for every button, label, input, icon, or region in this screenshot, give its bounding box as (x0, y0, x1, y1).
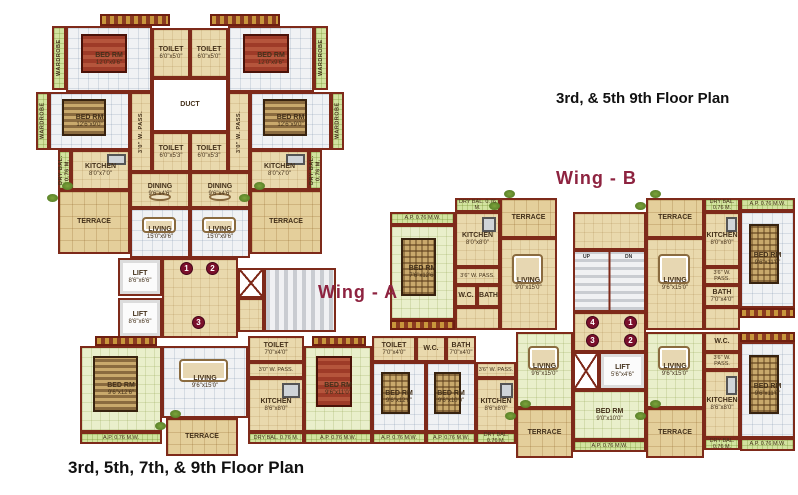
wbbr-drybal-strip: DRY BAL. 0.76 M. (704, 438, 740, 450)
wbtl-terrace: TERRACE (500, 198, 557, 238)
wbc-lift-shaft (573, 352, 599, 390)
toilet-top-1-label: TOILET6'0"x5'0" (154, 30, 188, 76)
dining-left: DINING9'6"x4'6" (130, 172, 190, 208)
passage-left-label: 3'0" W. PASS. (132, 94, 150, 170)
wbtr-bath: BATH7'0"x4'0" (704, 285, 740, 307)
wa-passage-label: 3'0" W. PASS. (250, 364, 302, 376)
wbtl-bath: BATH (477, 285, 500, 307)
wbbr-kitchen: KITCHEN8'6"x8'0" (704, 370, 740, 438)
sofa-icon (528, 346, 560, 370)
passage-right-label: 3'0" W. PASS. (230, 94, 248, 170)
sofa-icon (179, 359, 228, 382)
wbbl-drybal-strip-label: DRY BAL. 0.76 M. (478, 434, 514, 442)
wa-bedroom-2: BED RM9'6"x11'0" (304, 346, 372, 432)
bed-red-icon (316, 356, 352, 407)
wa-ap-strip-2: A.P. 0.76 M.W. (304, 432, 372, 444)
wbtr-ap-strip: A.P. 0.76 M.W. (740, 198, 795, 211)
kitchen-left: KITCHEN8'0"x7'0" (71, 150, 130, 190)
wbbl-ap-strip-1: A.P. 0.76 M.W. (372, 432, 426, 444)
shaft-landing-a (238, 298, 264, 332)
name-board-3 (95, 336, 157, 346)
wing-b-label: Wing - B (556, 168, 637, 189)
duct: DUCT (152, 78, 228, 132)
passage-left: 3'0" W. PASS. (130, 92, 152, 172)
wbbr-terrace-label: TERRACE (648, 410, 702, 456)
wbbl-wc-label: W.C. (418, 338, 444, 360)
wbc-lift-label: LIFT5'6"x4'6" (601, 354, 644, 388)
plan-title-top: 3rd, & 5th 9th Floor Plan (556, 90, 729, 107)
wbbl-ap-strip-1-label: A.P. 0.76 M.W. (374, 434, 424, 442)
wbc-ap-strip-label: A.P. 0.76 M.W. (575, 442, 644, 450)
dining-left-label: DINING9'6"x4'6" (132, 174, 188, 206)
bedroom-top-left: BED RM12'0"x9'6" (66, 26, 152, 92)
name-board-5 (390, 320, 455, 330)
wa-toilet: TOILET7'0"x4'0" (248, 336, 304, 362)
name-board-4 (312, 336, 366, 346)
bed-red-icon (243, 34, 289, 72)
wbbl-bedroom-1: BED RM9'6"x12'6" (372, 362, 426, 432)
wardrobe-strip-1-label: WARDROBE (54, 28, 64, 88)
wa-ap-strip-1: A.P. 0.76 M.W. (80, 432, 162, 444)
sofa-icon (512, 254, 544, 284)
stairs-up-label: UP (583, 254, 590, 260)
wbc-landing (573, 212, 646, 250)
toilet-mid-1: TOILET6'0"x5'3" (152, 132, 190, 172)
toilet-top-2: TOILET6'0"x5'0" (190, 28, 228, 78)
plan-title-bottom: 3rd, 5th, 7th, & 9th Floor Plan (68, 458, 304, 478)
sofa-icon (658, 346, 690, 370)
wardrobe-strip-3-label: WARDROBE (38, 94, 47, 148)
flat-marker-3: 3 (192, 316, 205, 329)
kitchen-icon (107, 154, 126, 165)
wa-living: LIVING9'6"x15'0" (162, 346, 248, 418)
lift-2: LIFT8'6"x6'6" (118, 298, 162, 338)
bed-plaid-icon (749, 355, 779, 414)
sofa-icon (142, 217, 176, 233)
wbtr-terrace-label: TERRACE (648, 200, 702, 236)
wbbr-drybal-strip-label: DRY BAL. 0.76 M. (706, 440, 738, 448)
terrace-right-label: TERRACE (252, 192, 320, 252)
wardrobe-strip-2-label: WARDROBE (316, 28, 326, 88)
wbbr-ap-strip-label: A.P. 0.76 M.W. (742, 440, 793, 449)
bedroom-top-right: BED RM12'0"x9'6" (228, 26, 314, 92)
toilet-mid-2-label: TOILET6'0"x5'3" (192, 134, 226, 170)
flat-marker-1: 1 (624, 316, 637, 329)
kitchen-icon (482, 217, 496, 232)
dining-right: DINING9'6"x4'6" (190, 172, 250, 208)
wbbr-passage: 3'6" W. PASS. (704, 352, 740, 370)
wbbl-bedroom-2: BED RM9'6"x10'0" (426, 362, 476, 432)
toilet-mid-2: TOILET6'0"x5'3" (190, 132, 228, 172)
terrace-left-label: TERRACE (60, 192, 128, 252)
lift-1-label: LIFT8'6"x6'6" (120, 260, 160, 294)
wa-passage: 3'0" W. PASS. (248, 362, 304, 378)
bedroom-mid-left: BED RM12'6"x9'0" (49, 92, 130, 150)
wbbl-terrace-label: TERRACE (518, 410, 571, 456)
wbtr-passage-label: 3'6" W. PASS. (706, 269, 738, 283)
wbtl-bedroom: BED RM7'6"x12'6" (390, 225, 455, 320)
wbtl-wc: W.C. (455, 285, 477, 307)
wbtl-terrace-label: TERRACE (502, 200, 555, 236)
flat-marker-1: 1 (180, 262, 193, 275)
flat-marker-3: 3 (586, 334, 599, 347)
wbtl-ap-strip-label: A.P. 0.76 M.W. (392, 214, 453, 223)
wbtl-passage: 3'6" W. PASS. (455, 267, 500, 285)
bedroom-mid-right: BED RM12'6"x9'0" (250, 92, 331, 150)
wbbl-passage: 3'6" W. PASS. (476, 362, 516, 378)
wardrobe-strip-4-label: WARDROBE (333, 94, 342, 148)
wbbl-bath-label: BATH7'0"x4'0" (448, 338, 474, 360)
wbtl-living: LIVING9'0"x15'0" (500, 238, 557, 330)
wbbr-living: LIVING9'6"x15'0" (646, 332, 704, 408)
wbtl-bath-label: BATH (479, 287, 498, 305)
floor-plan-canvas: 3rd, & 5th 9th Floor Plan Wing - A Wing … (0, 0, 798, 495)
bed-plaid-icon (434, 372, 461, 414)
wbbr-terrace: TERRACE (646, 408, 704, 458)
wbbr-ap-strip: A.P. 0.76 M.W. (740, 438, 795, 451)
drybal-strip-2-label: DRY BAL. 0.76 M. (311, 152, 320, 188)
wbtr-bedroom: BED RM9'6"x11'0" (740, 211, 795, 308)
wbtr-hall (704, 307, 740, 330)
wbtr-terrace: TERRACE (646, 198, 704, 238)
wardrobe-strip-2: WARDROBE (314, 26, 328, 90)
wbbl-toilet-label: TOILET7'0"x4'0" (374, 338, 414, 360)
dining-right-label: DINING9'6"x4'6" (192, 174, 248, 206)
lift-2-label: LIFT8'6"x6'6" (120, 300, 160, 336)
bed-striped-icon (93, 356, 138, 412)
wing-a-label: Wing - A (318, 282, 398, 303)
sofa-icon (658, 254, 690, 284)
flat-marker-4: 4 (586, 316, 599, 329)
wardrobe-strip-3: WARDROBE (36, 92, 49, 150)
passage-right: 3'0" W. PASS. (228, 92, 250, 172)
wa-drybal-strip-label: DRY BAL. 0.76 M. (250, 434, 302, 442)
table-icon (149, 193, 171, 201)
wbtr-kitchen: KITCHEN8'0"x8'0" (704, 212, 740, 267)
wbbl-living: LIVING9'6"x15'0" (516, 332, 573, 408)
wbtr-passage: 3'6" W. PASS. (704, 267, 740, 285)
kitchen-icon (286, 154, 305, 165)
wbc-ap-strip: A.P. 0.76 M.W. (573, 440, 646, 452)
wbbl-living-label: LIVING9'6"x15'0" (518, 334, 571, 406)
bed-plaid-icon (381, 372, 410, 414)
wbtl-wc-label: W.C. (457, 287, 475, 305)
wbtl-kitchen: KITCHEN8'0"x8'0" (455, 212, 500, 267)
wbtr-ap-strip-label: A.P. 0.76 M.W. (742, 200, 793, 209)
wbbr-wc-label: W.C. (706, 334, 738, 350)
wbtl-ap-strip: A.P. 0.76 M.W. (390, 212, 455, 225)
wbtr-living: LIVING9'6"x15'0" (646, 238, 704, 330)
name-board-7 (740, 332, 795, 342)
wa-drybal-strip: DRY BAL. 0.76 M. (248, 432, 304, 444)
stairs-dn-label: DN (625, 254, 632, 260)
terrace-left: TERRACE (58, 190, 130, 254)
wbbr-passage-label: 3'6" W. PASS. (706, 354, 738, 368)
drybal-strip-2: DRY BAL. 0.76 M. (309, 150, 322, 190)
wbc-lift: LIFT5'6"x4'6" (599, 352, 646, 390)
kitchen-icon (500, 383, 512, 398)
lift-1: LIFT8'6"x6'6" (118, 258, 162, 296)
toilet-mid-1-label: TOILET6'0"x5'3" (154, 134, 188, 170)
wbbl-terrace: TERRACE (516, 408, 573, 458)
lift-shaft-a (238, 268, 264, 298)
name-board-1 (100, 14, 170, 26)
toilet-top-2-label: TOILET6'0"x5'0" (192, 30, 226, 76)
wa-terrace-label: TERRACE (168, 420, 236, 454)
wbtr-drybal-strip: DRY BAL. 0.76 M. (704, 198, 740, 212)
table-icon (209, 193, 231, 201)
flat-marker-2: 2 (624, 334, 637, 347)
flat-marker-2: 2 (206, 262, 219, 275)
wbbl-bath: BATH7'0"x4'0" (446, 336, 476, 362)
wa-terrace: TERRACE (166, 418, 238, 456)
kitchen-icon (726, 376, 737, 395)
name-board-6 (740, 308, 795, 318)
wbbr-living-label: LIVING9'6"x15'0" (648, 334, 702, 406)
bed-red-icon (81, 34, 127, 72)
wa-bedroom-1: BED RM9'6"x12'6" (80, 346, 162, 432)
bed-plaid-icon (749, 224, 779, 284)
wbbl-kitchen: KITCHEN8'6"x8'0" (476, 378, 516, 432)
wbtr-bath-label: BATH7'0"x4'0" (706, 287, 738, 305)
toilet-top-1: TOILET6'0"x5'0" (152, 28, 190, 78)
kitchen-icon (282, 383, 300, 398)
wbtr-drybal-strip-label: DRY BAL. 0.76 M. (706, 200, 738, 210)
sofa-icon (202, 217, 236, 233)
wa-toilet-label: TOILET7'0"x4'0" (250, 338, 302, 360)
wbbl-ap-strip-2: A.P. 0.76 M.W. (426, 432, 476, 444)
wardrobe-strip-1: WARDROBE (52, 26, 66, 90)
wbbl-ap-strip-2-label: A.P. 0.76 M.W. (428, 434, 474, 442)
wardrobe-strip-4: WARDROBE (331, 92, 344, 150)
wbtl-hall (455, 307, 500, 330)
wa-kitchen: KITCHEN8'6"x8'0" (248, 378, 304, 432)
wbtl-passage-label: 3'6" W. PASS. (457, 269, 498, 283)
wbbl-toilet: TOILET7'0"x4'0" (372, 336, 416, 362)
bed-plaid-icon (401, 238, 436, 296)
bed-striped-icon (62, 99, 107, 136)
living-right: LIVING15'0"x9'6" (190, 208, 250, 258)
wbc-bedroom-label: BED RM9'0"x10'0" (575, 392, 644, 438)
wbbl-passage-label: 3'6" W. PASS. (478, 364, 514, 376)
terrace-right: TERRACE (250, 190, 322, 254)
living-left: LIVING15'0"x9'6" (130, 208, 190, 258)
name-board-2 (210, 14, 280, 26)
duct-label: DUCT (154, 80, 226, 130)
wbbl-drybal-strip: DRY BAL. 0.76 M. (476, 432, 516, 444)
wbbr-bedroom: BED RM9'6"x11'0" (740, 342, 795, 438)
wa-ap-strip-2-label: A.P. 0.76 M.W. (306, 434, 370, 442)
wa-ap-strip-1-label: A.P. 0.76 M.W. (82, 434, 160, 442)
kitchen-icon (726, 217, 737, 232)
bed-striped-icon (263, 99, 308, 136)
wbbl-wc: W.C. (416, 336, 446, 362)
wbbr-wc: W.C. (704, 332, 740, 352)
